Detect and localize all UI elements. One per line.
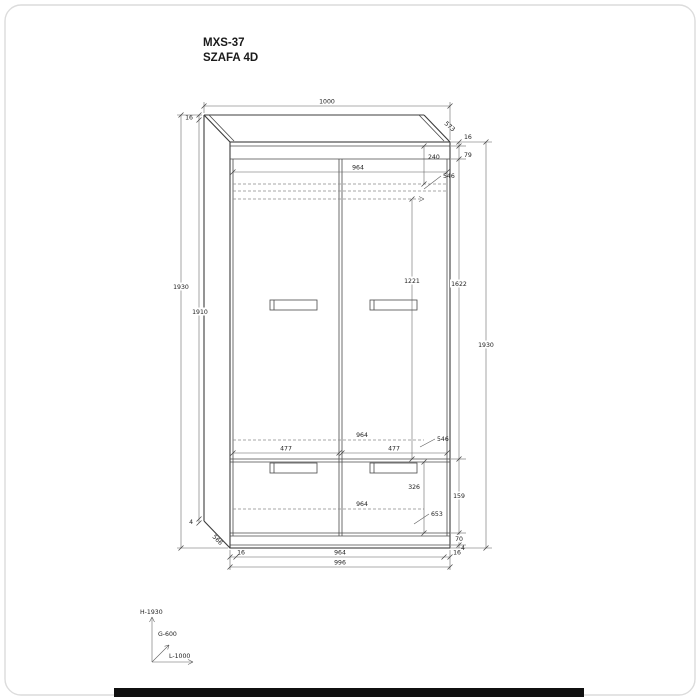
dim-label-edge-left: 16 [237, 550, 245, 557]
dim-left-chain: 1930 16 1910 4 [172, 113, 228, 551]
axis-label-height: H-1930 [140, 609, 163, 616]
dim-label-edge-right: 16 [453, 550, 461, 557]
dim-hanging-height: 1221 [403, 197, 421, 462]
left-door-handle [270, 300, 317, 310]
left-drawer-handle [270, 463, 317, 473]
dim-label-door-height: 1622 [451, 281, 467, 288]
page-border [5, 5, 695, 695]
footer-bar [114, 688, 584, 697]
dim-top-width: 1000 [202, 99, 453, 141]
wardrobe-technical-drawing: MXS-37 SZAFA 4D [0, 0, 700, 700]
right-drawer-handle [370, 463, 417, 473]
top-panel [204, 115, 450, 142]
dim-label-height-right: 1930 [478, 342, 494, 349]
dim-label-inner-width-bottom: 964 [356, 501, 368, 508]
dim-label-side-depth: 566 [211, 534, 224, 547]
dim-label-inner-width-mid: 964 [356, 432, 368, 439]
dim-bottom-chain: 16 964 16 996 [228, 550, 461, 571]
dimensions: 1000 573 1930 16 1910 4 566 [172, 99, 495, 571]
dim-label-side-height: 1910 [192, 309, 208, 316]
dim-label-top-shelf-drop: 240 [428, 154, 440, 161]
axis-label-depth: G-600 [158, 631, 177, 638]
dim-label-top-depth: 573 [443, 120, 457, 133]
dim-label-top-thickness-left: 16 [185, 115, 193, 122]
dim-label-bottom-gap-left: 4 [189, 519, 193, 526]
dim-label-inner-width-top: 964 [352, 165, 364, 172]
dim-label-door-width-left: 477 [280, 446, 292, 453]
dim-label-plinth: 70 [455, 536, 463, 543]
dim-label-top-thickness-right: 16 [464, 134, 472, 141]
dim-label-base-inner-width: 964 [334, 550, 346, 557]
dim-label-hanging-height: 1221 [404, 278, 420, 285]
left-side-panel [204, 115, 230, 548]
product-name: SZAFA 4D [203, 52, 258, 64]
axis-legend: H-1930 G-600 L-1000 [140, 609, 193, 665]
model-code: MXS-37 [203, 37, 245, 49]
dim-label-bottom-gap-right: 4 [461, 545, 465, 552]
dim-interior-top: 964 240 546 [231, 144, 455, 190]
hidden-shelf-lines [233, 184, 447, 509]
dim-label-top-width: 1000 [319, 99, 335, 106]
dim-label-bottom-depth: 653 [431, 511, 443, 518]
dim-interior-mid: 964 546 477 477 [231, 432, 450, 456]
dim-label-drawer-section: 159 [453, 493, 465, 500]
dim-label-width-total: 996 [334, 560, 346, 567]
right-door-handle [370, 300, 417, 310]
dim-right-inner-chain: 16 79 1622 159 70 4 [450, 134, 472, 552]
dim-drawer-zone: 326 964 653 [356, 460, 443, 536]
dim-label-top-section: 79 [464, 152, 472, 159]
dim-label-door-width-right: 477 [388, 446, 400, 453]
dim-right-outer: 1930 [451, 140, 495, 551]
axis-label-length: L-1000 [169, 653, 190, 660]
technical-drawing-page: MXS-37 SZAFA 4D [0, 0, 700, 700]
dim-label-height-left: 1930 [173, 284, 189, 291]
dim-label-shelf-depth-mid: 546 [437, 436, 449, 443]
dim-label-drawer-front-height: 326 [408, 484, 420, 491]
dim-label-shelf-depth-top: 546 [443, 173, 455, 180]
title-block: MXS-37 SZAFA 4D [203, 37, 258, 64]
